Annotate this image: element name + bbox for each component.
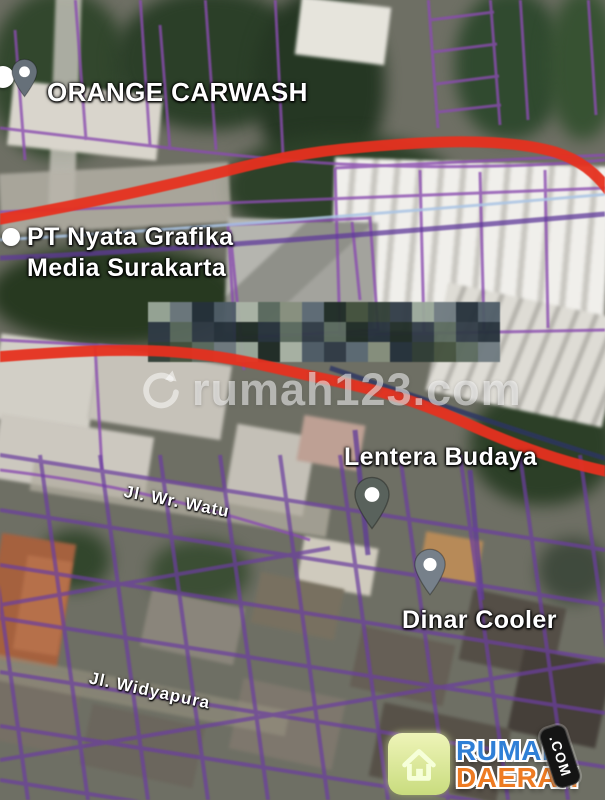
poi-label-orange-carwash[interactable]: ORANGE CARWASH	[47, 77, 308, 108]
watermark-text: rumah123.com	[192, 364, 522, 416]
map-pin-orange-carwash[interactable]	[11, 58, 38, 98]
poi-label-pt-nyata-grafika[interactable]: PT Nyata Grafika Media Surakarta	[27, 222, 234, 284]
circular-arrow-icon	[138, 367, 184, 413]
annotation-line-upper	[0, 142, 605, 220]
brand-logo: RUMAH DAERAH .COM	[388, 730, 602, 798]
poi-label-line2: Media Surakarta	[27, 253, 234, 284]
brand-text: RUMAH DAERAH .COM	[456, 737, 579, 791]
poi-label-lentera-budaya[interactable]: Lentera Budaya	[344, 443, 537, 472]
poi-label-dinar-cooler[interactable]: Dinar Cooler	[402, 606, 557, 635]
poi-dot[interactable]	[2, 228, 20, 246]
satellite-map[interactable]: rumah123.com ORANGE CARWASH PT Nyata Gra…	[0, 0, 605, 800]
house-icon	[388, 733, 450, 795]
map-pin-lentera-budaya[interactable]	[352, 476, 392, 530]
map-pin-dinar-cooler[interactable]	[412, 548, 448, 596]
poi-label-line1: PT Nyata Grafika	[27, 222, 234, 253]
watermark: rumah123.com	[138, 364, 522, 416]
